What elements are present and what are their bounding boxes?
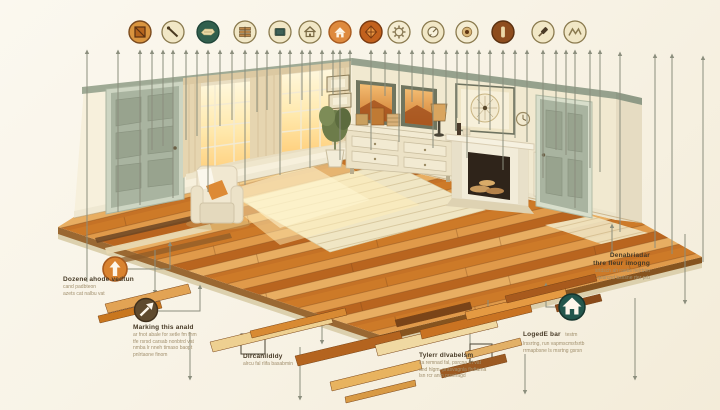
callout-legend-line: lrssrtng, run vapmscmsfsrtb (523, 341, 643, 348)
callout-underlay-title: Denabriadar (556, 252, 650, 260)
gear-icon (388, 21, 410, 43)
right-door (536, 95, 592, 218)
marking-arrow-badge (135, 299, 158, 322)
callout-disassembly-line: alrcu fal rlifa basabmin (243, 361, 323, 368)
callout-legend-suffix: testm (565, 332, 577, 338)
callout-install-line: cand padbteon (63, 284, 169, 291)
callout-underlay: Denabriadar thre fleur imogng srtdsch ah… (556, 252, 650, 281)
callout-underlay-line: srtdsch ah raebs nelrbtm (556, 268, 650, 275)
plank-end-icon (492, 21, 514, 43)
mallet-icon (532, 21, 554, 43)
callout-underlay-line: qesrcnd bsrlsne rter prb (556, 275, 650, 282)
home-filled-icon (329, 21, 351, 43)
nail-icon (162, 21, 184, 43)
callout-legend-title: LogedE bar (523, 331, 561, 338)
radial-artwork (456, 84, 514, 134)
door-knob (173, 146, 177, 150)
plane-tool-icon (197, 21, 219, 43)
diamond-icon (360, 21, 382, 43)
icon-row (129, 21, 586, 43)
framed-board-icon (129, 21, 151, 43)
callout-install-line: azets cat nalbu vat (63, 291, 169, 298)
callout-tyler: Tylerr dlvabelsm ca remnad fal, psrcna f… (419, 352, 513, 380)
gauge-icon (422, 21, 444, 43)
callout-install-title: Dozene ahode vedtun (63, 276, 169, 284)
callout-tyler-line: and hlgm, prasvagnla flrdtama (419, 367, 513, 374)
callout-disassembly: Dircanildldy alrcu fal rlifa basabmin (243, 353, 323, 368)
callout-marking-line: ar fnot abale for setle fm fnm (133, 332, 225, 339)
callout-underlay-title: thre fleur imogng (556, 260, 650, 268)
plant-pot (326, 150, 344, 167)
callout-marking: Marking this anald ar fnot abale for set… (133, 324, 225, 358)
callout-install: Dozene ahode vedtun cand padbteon azets … (63, 276, 169, 297)
callout-marking-line: pnlrtaone finom (133, 352, 225, 359)
callout-marking-line: tfe rsrsd carsab nonbtrd vat (133, 339, 225, 346)
wall-clock (517, 113, 530, 126)
plank-stack-icon (234, 21, 256, 43)
callout-marking-line: nmba lr nneh timaso baopt (133, 345, 225, 352)
callout-tyler-line: lsn rcr anm prschagd (419, 373, 513, 380)
callout-marking-title: Marking this anald (133, 324, 225, 332)
flooring-infographic: Dozene ahode vedtun cand padbteon azets … (0, 0, 720, 410)
callout-disassembly-title: Dircanildldy (243, 353, 323, 361)
grain-zigzag-icon (564, 21, 586, 43)
callout-tyler-line: ca remnad fal, psrcna frt vat (419, 360, 513, 367)
mantel-candle (457, 123, 461, 135)
callout-legend-line: rrmapbsne ls msrtng gsrsn (523, 348, 643, 355)
callout-legend: LogedE bar testm lrssrtng, run vapmscmsf… (523, 323, 643, 354)
home-badge (559, 294, 585, 320)
callout-tyler-title: Tylerr dlvabelsm (419, 352, 513, 360)
log (486, 188, 504, 194)
log (479, 180, 495, 186)
screen-icon (269, 21, 291, 43)
home-outline-icon (299, 21, 321, 43)
wood-knot-icon (456, 21, 478, 43)
